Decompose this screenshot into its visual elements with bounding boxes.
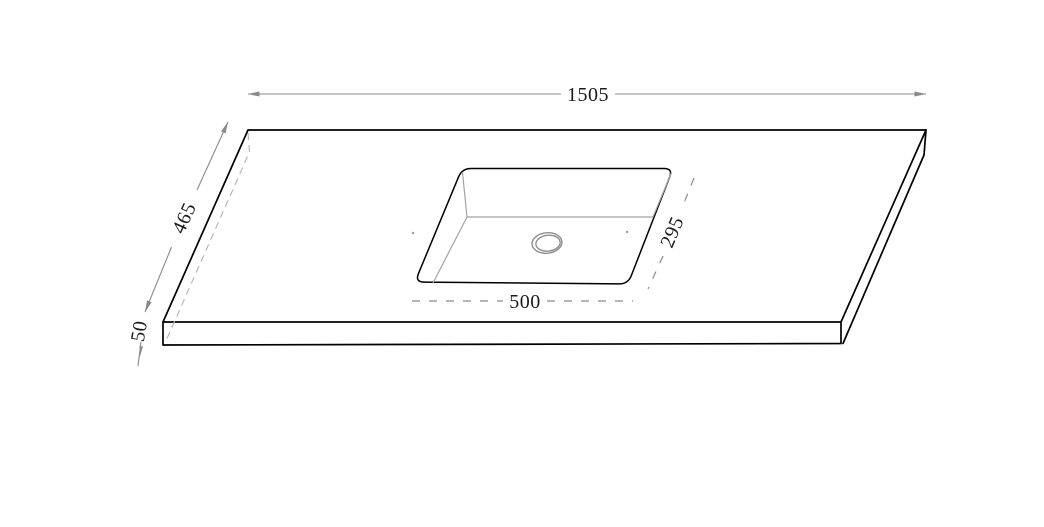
technical-drawing: 1505 465 50 500 295 [0,0,1044,527]
dim-sink-width: 500 [412,291,633,313]
hidden-bottom-left-edge [165,133,250,343]
dim-sink-width-label: 500 [509,291,541,313]
center-mark-right [626,231,628,233]
sink-interior-edges [433,173,672,284]
dim-overall-depth-label: 465 [168,199,201,237]
sink-basin [412,169,672,284]
thickness-arrow-down [139,346,143,357]
dim-overall-depth: 465 [145,122,228,312]
countertop-right-face [843,130,926,344]
dim-overall-width: 1505 [248,84,926,106]
dim-sink-depth-label: 295 [656,213,689,251]
center-mark-left [412,232,414,234]
countertop-front-face [163,322,841,345]
dim-thickness: 50 [127,319,152,366]
dim-overall-width-label: 1505 [567,84,609,106]
countertop-slab [163,130,926,345]
dim-thickness-label: 50 [127,319,152,344]
drawing-canvas: 1505 465 50 500 295 [0,0,1044,527]
countertop-top-face [163,130,926,322]
drain-hole [531,231,563,254]
sink-opening [417,169,670,284]
dim-sink-depth: 295 [648,178,694,289]
